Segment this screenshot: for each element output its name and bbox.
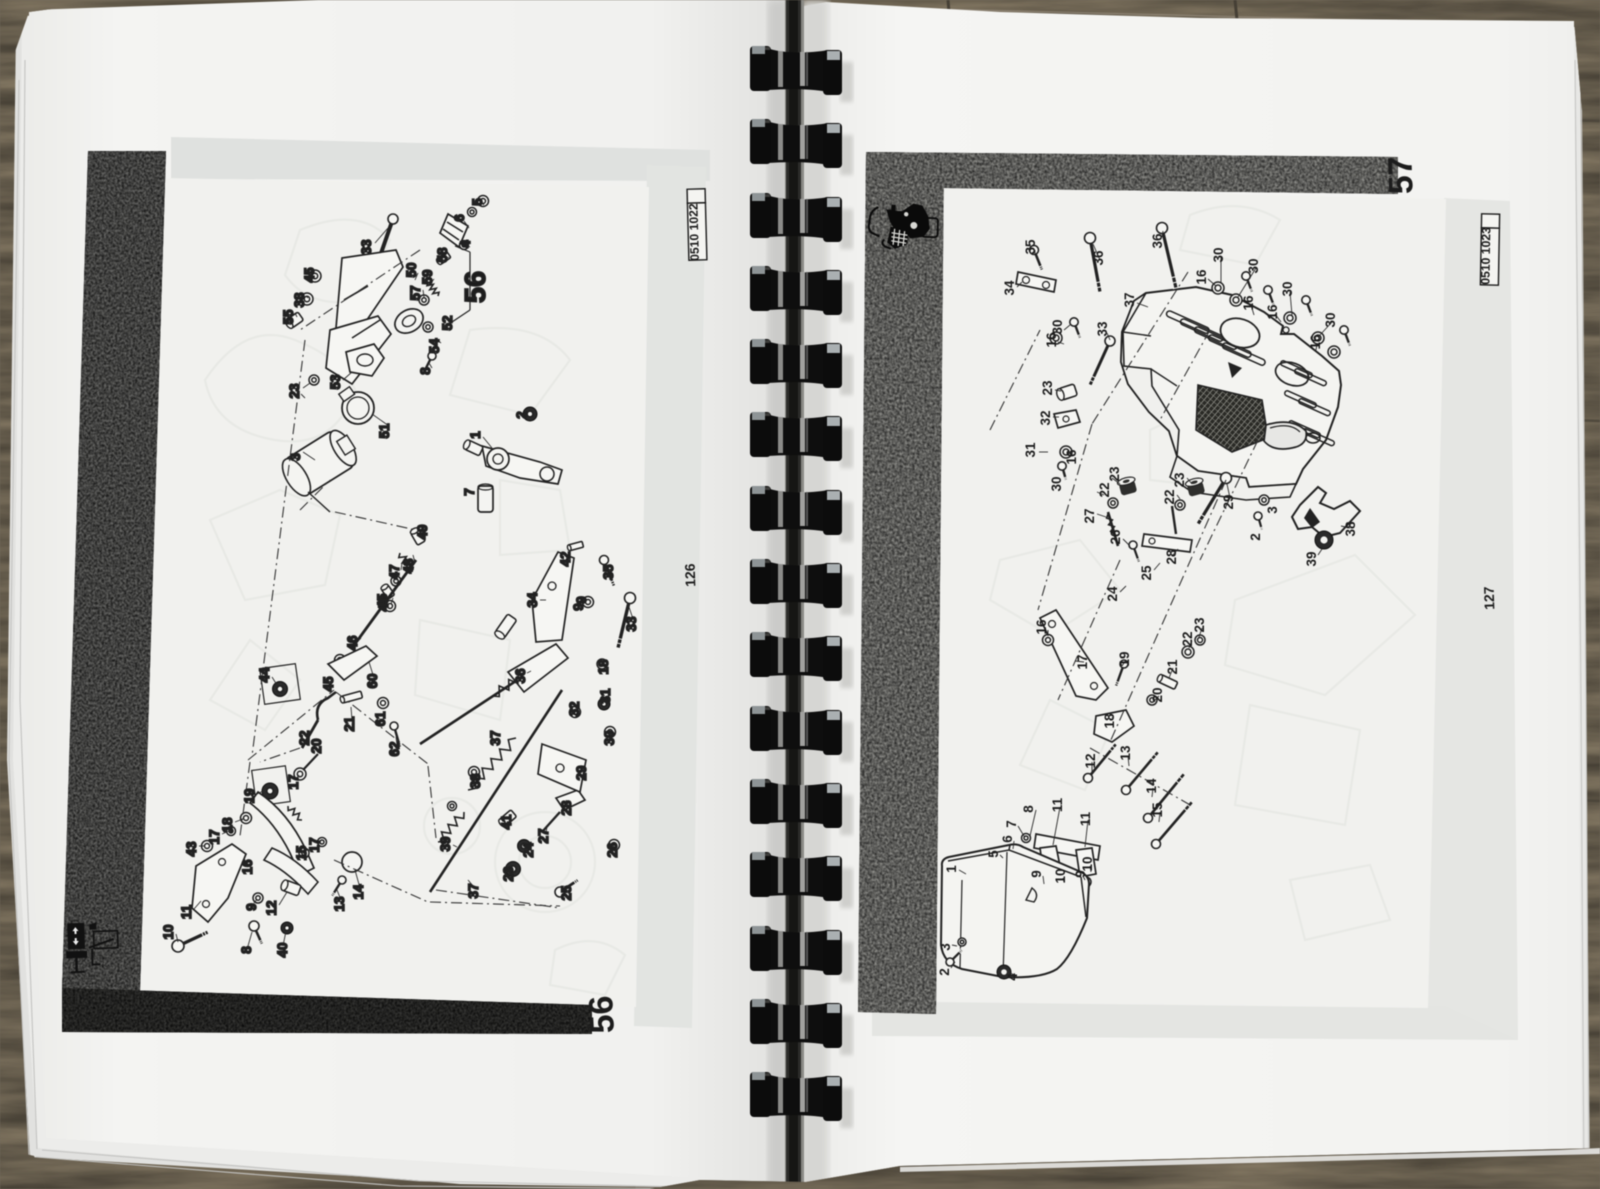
svg-text:7: 7 [1004,820,1019,828]
svg-text:2: 2 [514,411,529,419]
svg-text:19: 19 [1117,651,1132,666]
svg-text:14: 14 [1144,778,1159,794]
svg-text:1: 1 [944,865,959,873]
svg-text:16: 16 [1034,619,1049,635]
svg-text:59: 59 [420,269,435,284]
svg-text:31: 31 [598,688,613,704]
svg-text:20: 20 [309,738,324,753]
svg-text:1: 1 [468,431,483,439]
svg-text:33: 33 [624,616,639,632]
svg-text:25: 25 [559,885,574,901]
svg-text:34: 34 [525,592,540,608]
svg-text:10: 10 [1080,856,1095,871]
svg-text:23: 23 [501,866,516,882]
svg-text:57: 57 [1381,156,1420,195]
svg-text:36: 36 [1091,250,1106,266]
svg-text:44: 44 [257,667,272,683]
svg-text:17: 17 [207,829,222,844]
svg-text:5: 5 [986,850,1001,858]
svg-text:22: 22 [1097,482,1112,497]
svg-text:36: 36 [1150,233,1165,249]
svg-text:3: 3 [288,453,303,461]
svg-text:9: 9 [571,603,586,611]
svg-text:28: 28 [1164,549,1179,565]
svg-text:38: 38 [292,292,307,308]
svg-text:11: 11 [1078,811,1093,826]
svg-text:8: 8 [1021,805,1036,813]
svg-text:12: 12 [264,900,279,915]
svg-text:30: 30 [1246,258,1261,273]
svg-text:8: 8 [418,367,433,375]
svg-text:0510 1022: 0510 1022 [686,203,702,261]
svg-text:35: 35 [601,564,616,580]
svg-text:37: 37 [488,730,503,745]
svg-text:24: 24 [1105,586,1120,602]
svg-text:4: 4 [1005,973,1020,981]
svg-text:22: 22 [1180,631,1195,646]
svg-text:56: 56 [460,271,492,303]
svg-text:18: 18 [220,817,235,833]
svg-text:13: 13 [332,896,347,912]
svg-text:41: 41 [499,814,514,830]
svg-text:6: 6 [452,214,467,222]
svg-text:29: 29 [574,765,589,780]
svg-text:30: 30 [602,730,617,745]
svg-text:127: 127 [1481,586,1498,610]
svg-text:23: 23 [1192,617,1207,633]
svg-text:10: 10 [161,924,176,939]
svg-text:16: 16 [1194,269,1209,285]
svg-text:42: 42 [558,551,573,566]
svg-text:2: 2 [1248,533,1263,541]
svg-text:30: 30 [1049,476,1064,491]
svg-text:6: 6 [1000,835,1015,843]
svg-text:2: 2 [937,968,952,976]
svg-text:51: 51 [377,423,392,439]
svg-text:27: 27 [1082,508,1097,523]
svg-text:23: 23 [287,383,302,399]
svg-text:25: 25 [1139,565,1154,581]
svg-text:16: 16 [1308,334,1323,350]
svg-text:48: 48 [401,558,416,574]
svg-text:10: 10 [1053,868,1068,883]
svg-text:54: 54 [427,338,442,354]
svg-text:56: 56 [582,995,622,1035]
svg-text:40: 40 [275,942,290,957]
svg-text:49: 49 [415,524,430,539]
svg-text:24: 24 [521,842,536,858]
svg-text:18: 18 [596,659,611,675]
svg-text:9: 9 [244,903,259,911]
svg-text:37: 37 [1122,292,1137,307]
svg-text:12: 12 [1083,753,1098,768]
svg-text:23: 23 [1172,472,1187,488]
svg-text:19: 19 [242,788,257,803]
svg-text:11: 11 [1050,797,1065,812]
svg-text:16: 16 [1265,304,1280,320]
svg-text:26: 26 [1108,529,1123,545]
svg-text:26: 26 [605,842,620,858]
svg-text:52: 52 [440,315,455,330]
svg-text:3: 3 [938,943,953,951]
svg-text:8: 8 [239,946,254,954]
svg-text:45: 45 [376,596,391,612]
svg-text:50: 50 [404,262,419,277]
svg-text:5: 5 [470,198,485,206]
svg-text:21: 21 [1165,659,1180,675]
svg-text:11: 11 [179,904,194,919]
svg-text:45: 45 [302,267,317,283]
svg-text:15: 15 [1150,802,1165,818]
svg-text:17: 17 [1075,654,1090,669]
svg-text:62: 62 [387,741,402,756]
svg-text:20: 20 [1150,687,1165,702]
svg-text:38: 38 [468,773,483,789]
svg-text:53: 53 [328,374,343,390]
svg-text:55: 55 [281,309,296,325]
svg-text:14: 14 [351,884,366,900]
svg-text:23: 23 [1040,380,1055,396]
svg-text:38: 38 [1343,521,1358,537]
svg-text:45: 45 [321,676,336,692]
svg-text:33: 33 [1095,321,1110,337]
svg-text:9: 9 [574,596,589,604]
svg-text:33: 33 [359,239,374,255]
svg-text:61: 61 [373,711,388,727]
svg-text:18: 18 [1102,713,1117,729]
svg-text:17: 17 [286,774,301,789]
svg-text:21: 21 [342,716,357,732]
svg-text:32: 32 [567,701,582,716]
svg-text:7: 7 [462,488,477,496]
svg-text:30: 30 [1280,281,1295,296]
svg-text:22: 22 [1162,489,1177,504]
svg-text:34: 34 [1002,280,1017,296]
svg-text:3: 3 [1265,506,1280,514]
svg-text:43: 43 [184,841,199,857]
svg-text:30: 30 [1323,312,1338,327]
svg-text:0510 1023: 0510 1023 [1478,227,1493,285]
svg-text:16: 16 [1064,449,1079,465]
svg-text:16: 16 [1241,295,1256,311]
svg-text:16: 16 [1044,332,1059,348]
svg-text:46: 46 [345,635,360,651]
svg-text:37: 37 [466,883,481,898]
svg-text:57: 57 [408,285,423,300]
svg-text:60: 60 [365,673,380,688]
svg-text:16: 16 [240,859,255,875]
svg-text:17: 17 [307,837,322,852]
svg-text:13: 13 [1118,745,1133,761]
svg-text:35: 35 [1023,239,1038,255]
svg-text:30: 30 [1050,319,1065,334]
svg-text:4: 4 [458,240,473,248]
svg-text:39: 39 [1304,551,1319,566]
svg-text:36: 36 [513,668,528,684]
svg-text:58: 58 [435,247,450,263]
svg-text:29: 29 [1221,494,1236,509]
svg-text:47: 47 [387,564,402,579]
svg-text:23: 23 [1107,466,1122,482]
svg-text:126: 126 [682,563,699,587]
svg-text:27: 27 [536,828,551,843]
svg-text:9: 9 [1029,870,1044,878]
svg-text:28: 28 [559,800,574,816]
svg-text:32: 32 [1038,410,1053,425]
svg-text:39: 39 [438,836,453,851]
svg-text:30: 30 [1211,247,1226,262]
svg-text:31: 31 [1023,442,1038,458]
